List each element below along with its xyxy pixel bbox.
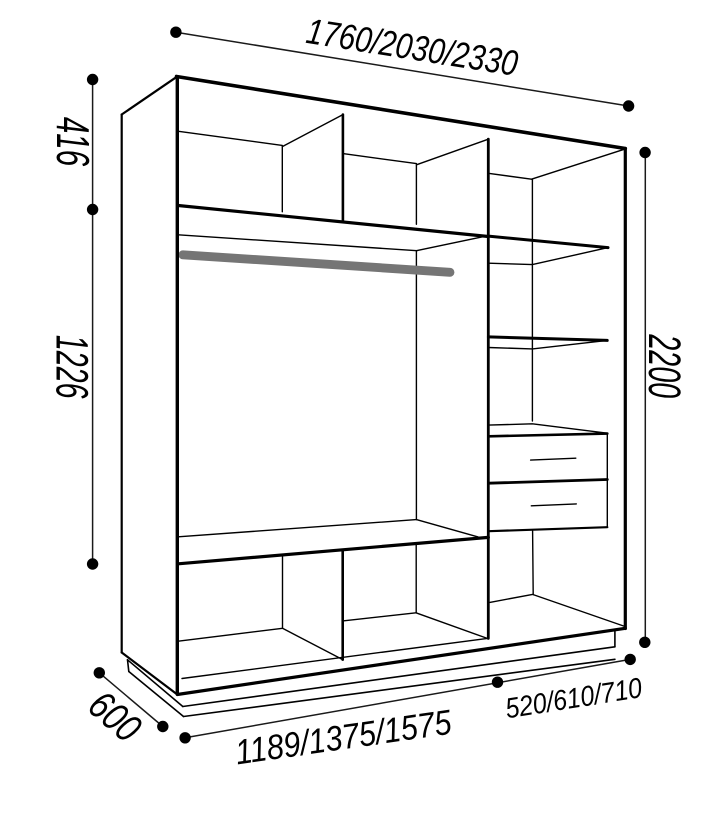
svg-text:1226: 1226	[47, 335, 97, 399]
svg-text:416: 416	[47, 117, 98, 167]
svg-text:2200: 2200	[640, 334, 690, 398]
